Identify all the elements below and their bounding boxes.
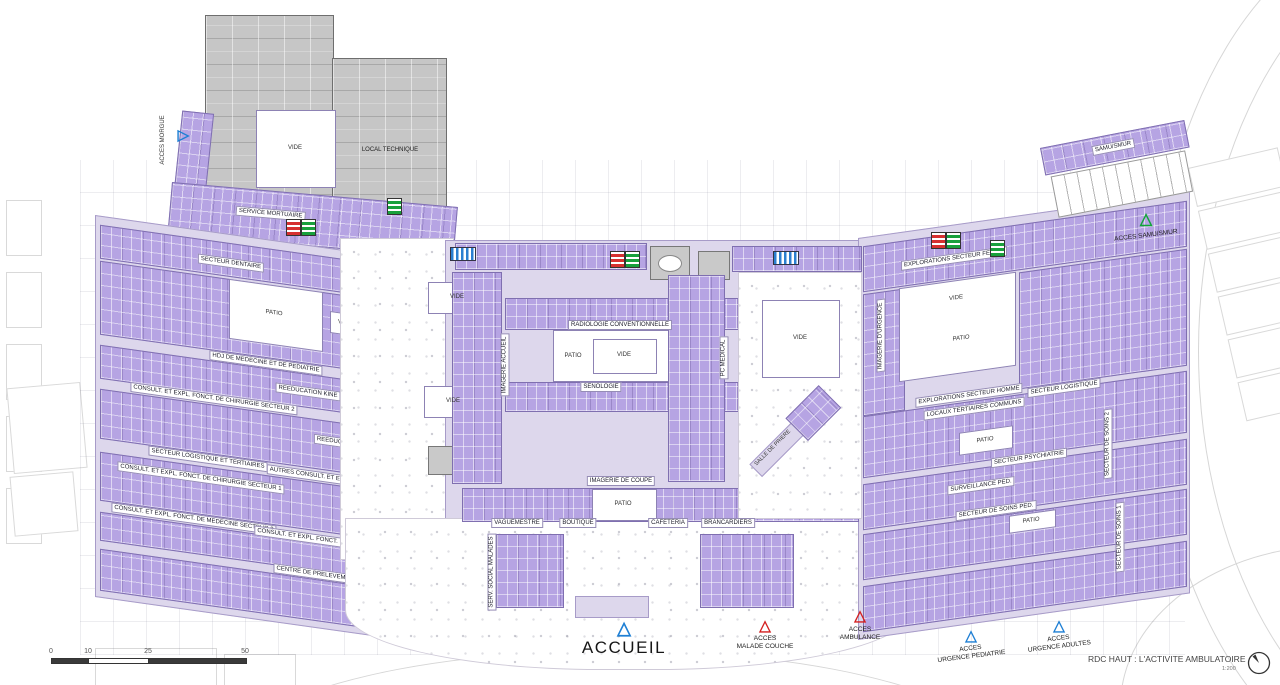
acces-morgue-label: ACCES MORGUE xyxy=(160,115,166,164)
urgence-adultes-triangle-icon: △ xyxy=(1053,619,1065,634)
urgence-pediatrie-triangle-icon: △ xyxy=(965,629,977,644)
lift-red-icon xyxy=(610,251,625,268)
site-parcel xyxy=(10,471,79,536)
center-right-column xyxy=(668,275,725,482)
scale-bar: 0 10 25 50 xyxy=(45,648,255,670)
serv-social-label: SERV. SOCIAL MALADES xyxy=(488,533,497,610)
accueil-label: ACCUEIL xyxy=(582,638,666,658)
scale-tick-0: 0 xyxy=(49,648,53,655)
acces-morgue-triangle-icon: △ xyxy=(177,130,192,142)
samu-triangle-icon: △ xyxy=(1140,212,1152,228)
lift-green-icon xyxy=(946,232,961,249)
center-vide-label: VIDE xyxy=(617,352,631,358)
pc-medical-label: PC MEDICAL xyxy=(720,337,729,380)
center-left-column xyxy=(452,272,502,484)
stair-oval xyxy=(658,255,682,272)
boutique-label: BOUTIQUE xyxy=(559,518,596,528)
site-parcel xyxy=(6,272,42,328)
bottom-patio-label: PATIO xyxy=(614,501,631,507)
right-wing: EXPLORATIONS SECTEUR FEMME VIDE PATIO IM… xyxy=(858,191,1190,640)
right-wing-rooms xyxy=(1019,249,1187,390)
senologie-label: SENOLOGIE xyxy=(580,382,621,392)
scale-tick-10: 10 xyxy=(84,648,92,655)
lower-rooms-left xyxy=(496,534,564,608)
lift-red-icon xyxy=(286,219,301,236)
entrance-stub xyxy=(575,596,649,618)
radiologie-label: RADIOLOGIE CONVENTIONNELLE xyxy=(568,320,672,330)
scale-bar-segment xyxy=(51,658,90,664)
courtyard-vide-right-label: VIDE xyxy=(793,335,807,341)
ambulance-triangle-icon: △ xyxy=(854,609,866,624)
escalator-icon xyxy=(773,251,799,265)
site-parcel xyxy=(6,382,87,474)
scale-tick-25: 25 xyxy=(144,648,152,655)
soins-2-label: SECTEUR DE SOINS 2 xyxy=(1104,408,1113,479)
imagerie-coupe-label: IMAGERIE DE COUPE xyxy=(587,476,655,486)
cafeteria-label: CAFETERIA xyxy=(648,518,688,528)
brancardiers-label: BRANCARDIERS xyxy=(701,518,755,528)
void-technical-label: VIDE xyxy=(288,145,302,151)
scale-tick-50: 50 xyxy=(241,648,249,655)
local-technique-label: LOCAL TECHNIQUE xyxy=(362,147,418,153)
scale-bar-segment xyxy=(88,658,150,664)
north-arrow-icon xyxy=(1246,650,1272,676)
center-patio-label: PATIO xyxy=(564,353,581,359)
right-wing-vide-patio xyxy=(899,272,1016,382)
imagerie-accueil-label: IMAGERIE ACCUEIL xyxy=(501,334,510,397)
lift-green-icon xyxy=(301,219,316,236)
courtyard-vide-2-label: VIDE xyxy=(446,398,460,404)
drawing-scale-note: 1:200 xyxy=(1222,666,1236,672)
lift-red-icon xyxy=(931,232,946,249)
floor-plan-canvas: VIDE LOCAL TECHNIQUE SERVICE MORTUAIRE A… xyxy=(0,0,1280,685)
lower-rooms-right xyxy=(700,534,794,608)
lift-green-icon xyxy=(990,240,1005,257)
malade-couche-label: ACCES MALADE COUCHE xyxy=(737,635,794,651)
escalator-icon xyxy=(450,247,476,261)
drawing-title: RDC HAUT : L'ACTIVITE AMBULATOIRE xyxy=(1088,654,1246,664)
site-parcel xyxy=(6,200,42,256)
soins-1-label: SECTEUR DE SOINS 1 xyxy=(1116,502,1125,573)
malade-couche-triangle-icon: △ xyxy=(759,619,771,634)
lift-green-icon xyxy=(625,251,640,268)
accueil-triangle-icon: △ xyxy=(617,619,631,637)
lift-green-icon xyxy=(387,198,402,215)
courtyard-vide-1-label: VIDE xyxy=(450,294,464,300)
vaguemestre-label: VAGUEMESTRE xyxy=(491,518,543,528)
scale-bar-segment xyxy=(148,658,247,664)
ambulance-label: ACCES AMBULANCE xyxy=(840,626,880,642)
imagerie-urgence-label: IMAGERIE D'URGENCE xyxy=(877,299,886,373)
